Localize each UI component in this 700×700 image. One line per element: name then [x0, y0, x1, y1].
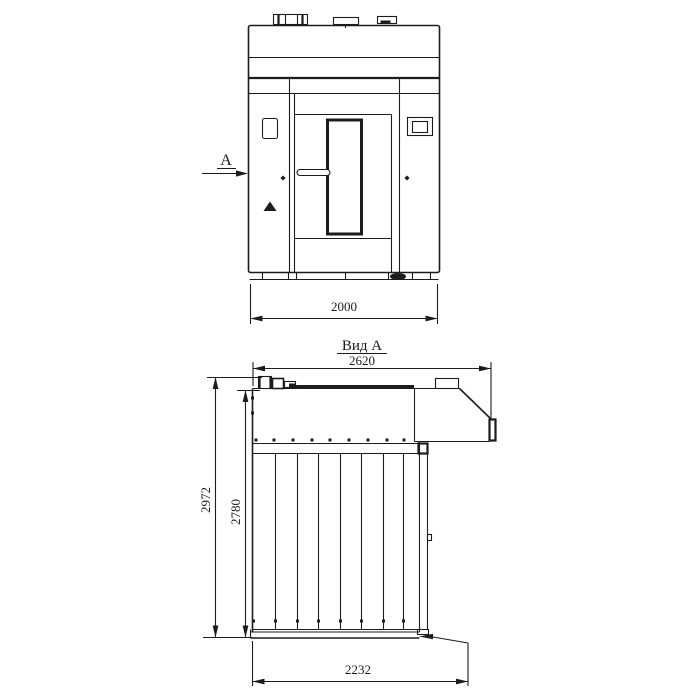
front-view: 2000 A [202, 15, 440, 325]
section-arrow-a: A [202, 152, 248, 177]
side-view-top-units [259, 377, 297, 389]
side-view-title: Вид А [337, 338, 387, 354]
side-view-hood [415, 379, 496, 442]
technical-drawing: 2000 A Вид А 2620 2972 [0, 0, 700, 700]
exhaust-outlet [490, 420, 496, 441]
view-title-label: Вид А [342, 338, 382, 354]
dimension-2000: 2000 [251, 284, 438, 324]
side-view-base [251, 630, 420, 639]
door-side-handle [428, 535, 432, 541]
front-view-door [280, 94, 409, 273]
dimension-2000-label: 2000 [331, 299, 357, 314]
door-latch-dot-right [404, 176, 409, 181]
dimension-2620-label: 2620 [349, 353, 375, 368]
front-view-base [250, 273, 439, 281]
caster-wheel [390, 273, 406, 280]
section-arrow-icon [236, 170, 248, 176]
drawing-canvas: 2000 A Вид А 2620 2972 [0, 0, 700, 700]
side-view: Вид А 2620 2972 2780 [198, 338, 496, 686]
front-view-control-panel [408, 118, 433, 136]
door-window [328, 120, 362, 234]
front-view-left-panel [263, 119, 278, 212]
door-latch-dot-left [280, 176, 285, 181]
ramp-leader [419, 634, 468, 686]
dimension-2232-label: 2232 [345, 662, 371, 677]
side-view-rivet-row [255, 439, 406, 442]
section-arrow-label: A [220, 152, 232, 169]
side-view-door-edge [418, 442, 432, 635]
dimension-2232: 2232 [253, 641, 469, 686]
door-handle [297, 170, 330, 176]
side-view-panels [252, 444, 420, 630]
dimension-2780-label: 2780 [228, 499, 243, 525]
access-panel [263, 119, 278, 139]
warning-triangle-icon [264, 202, 277, 212]
dimension-2972-label: 2972 [198, 487, 213, 513]
